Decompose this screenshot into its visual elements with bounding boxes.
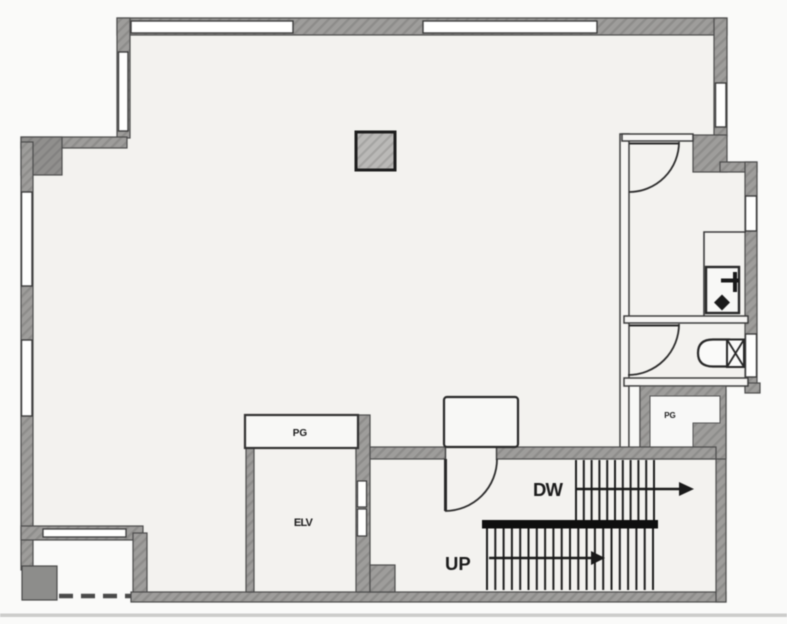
svg-text:ELV: ELV <box>294 517 314 529</box>
svg-text:DW: DW <box>533 479 564 500</box>
svg-text:UP: UP <box>445 553 471 574</box>
svg-text:PG: PG <box>293 428 308 439</box>
svg-text:PG: PG <box>664 411 676 420</box>
